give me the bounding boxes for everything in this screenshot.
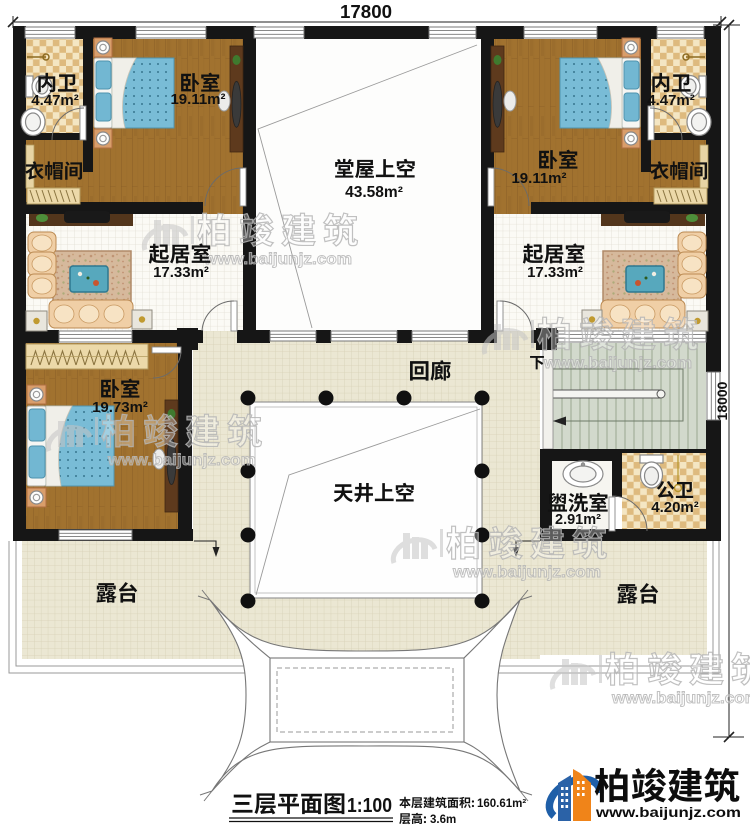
svg-text:3.6m: 3.6m (430, 814, 456, 826)
svg-text:4.47m²: 4.47m² (647, 92, 695, 109)
svg-text:19.73m²: 19.73m² (92, 399, 148, 416)
svg-text:17.33m²: 17.33m² (527, 264, 583, 281)
svg-text:43.58m²: 43.58m² (345, 184, 403, 201)
svg-text:1:100: 1:100 (347, 794, 392, 817)
svg-text:18000: 18000 (714, 381, 730, 420)
svg-text:19.11m²: 19.11m² (170, 91, 225, 108)
svg-text:www.baijunjz.com: www.baijunjz.com (543, 355, 692, 372)
svg-text:www.baijunjz.com: www.baijunjz.com (452, 564, 601, 581)
svg-text:4.47m²: 4.47m² (31, 92, 79, 109)
svg-text:www.baijunjz.com: www.baijunjz.com (595, 805, 741, 820)
svg-text:19.11m²: 19.11m² (511, 170, 566, 187)
svg-text:160.61m²: 160.61m² (477, 798, 526, 810)
svg-text:17800: 17800 (340, 1, 392, 22)
svg-text:17.33m²: 17.33m² (153, 264, 209, 281)
svg-text:4.20m²: 4.20m² (651, 499, 699, 516)
svg-text:www.baijunjz.com: www.baijunjz.com (203, 251, 352, 268)
svg-text:www.baijunjz.com: www.baijunjz.com (611, 690, 750, 707)
svg-text:www.baijunjz.com: www.baijunjz.com (107, 452, 256, 469)
svg-text:2.91m²: 2.91m² (555, 512, 601, 528)
